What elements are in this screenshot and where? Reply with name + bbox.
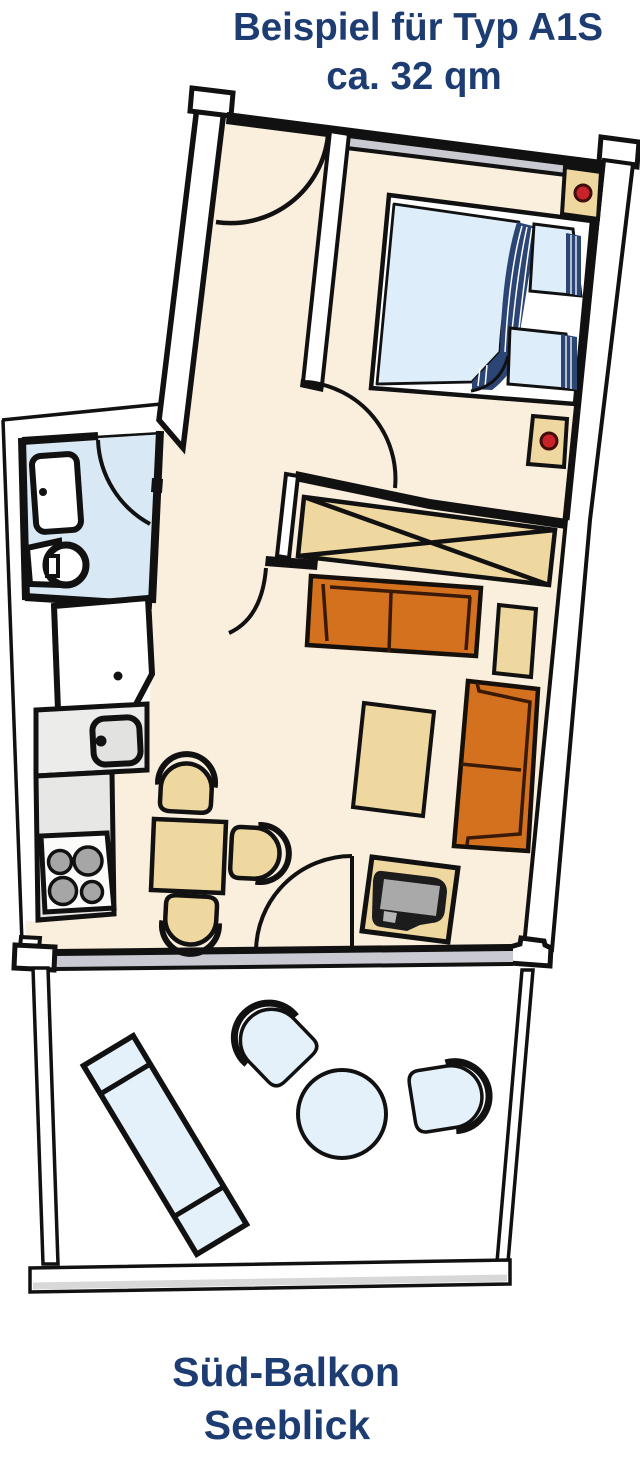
svg-text:ca. 32 qm: ca. 32 qm [326,55,502,98]
svg-text:Seeblick: Seeblick [204,1402,371,1448]
svg-text:Beispiel für Typ A1S: Beispiel für Typ A1S [233,6,603,49]
svg-text:Süd-Balkon: Süd-Balkon [172,1349,400,1395]
